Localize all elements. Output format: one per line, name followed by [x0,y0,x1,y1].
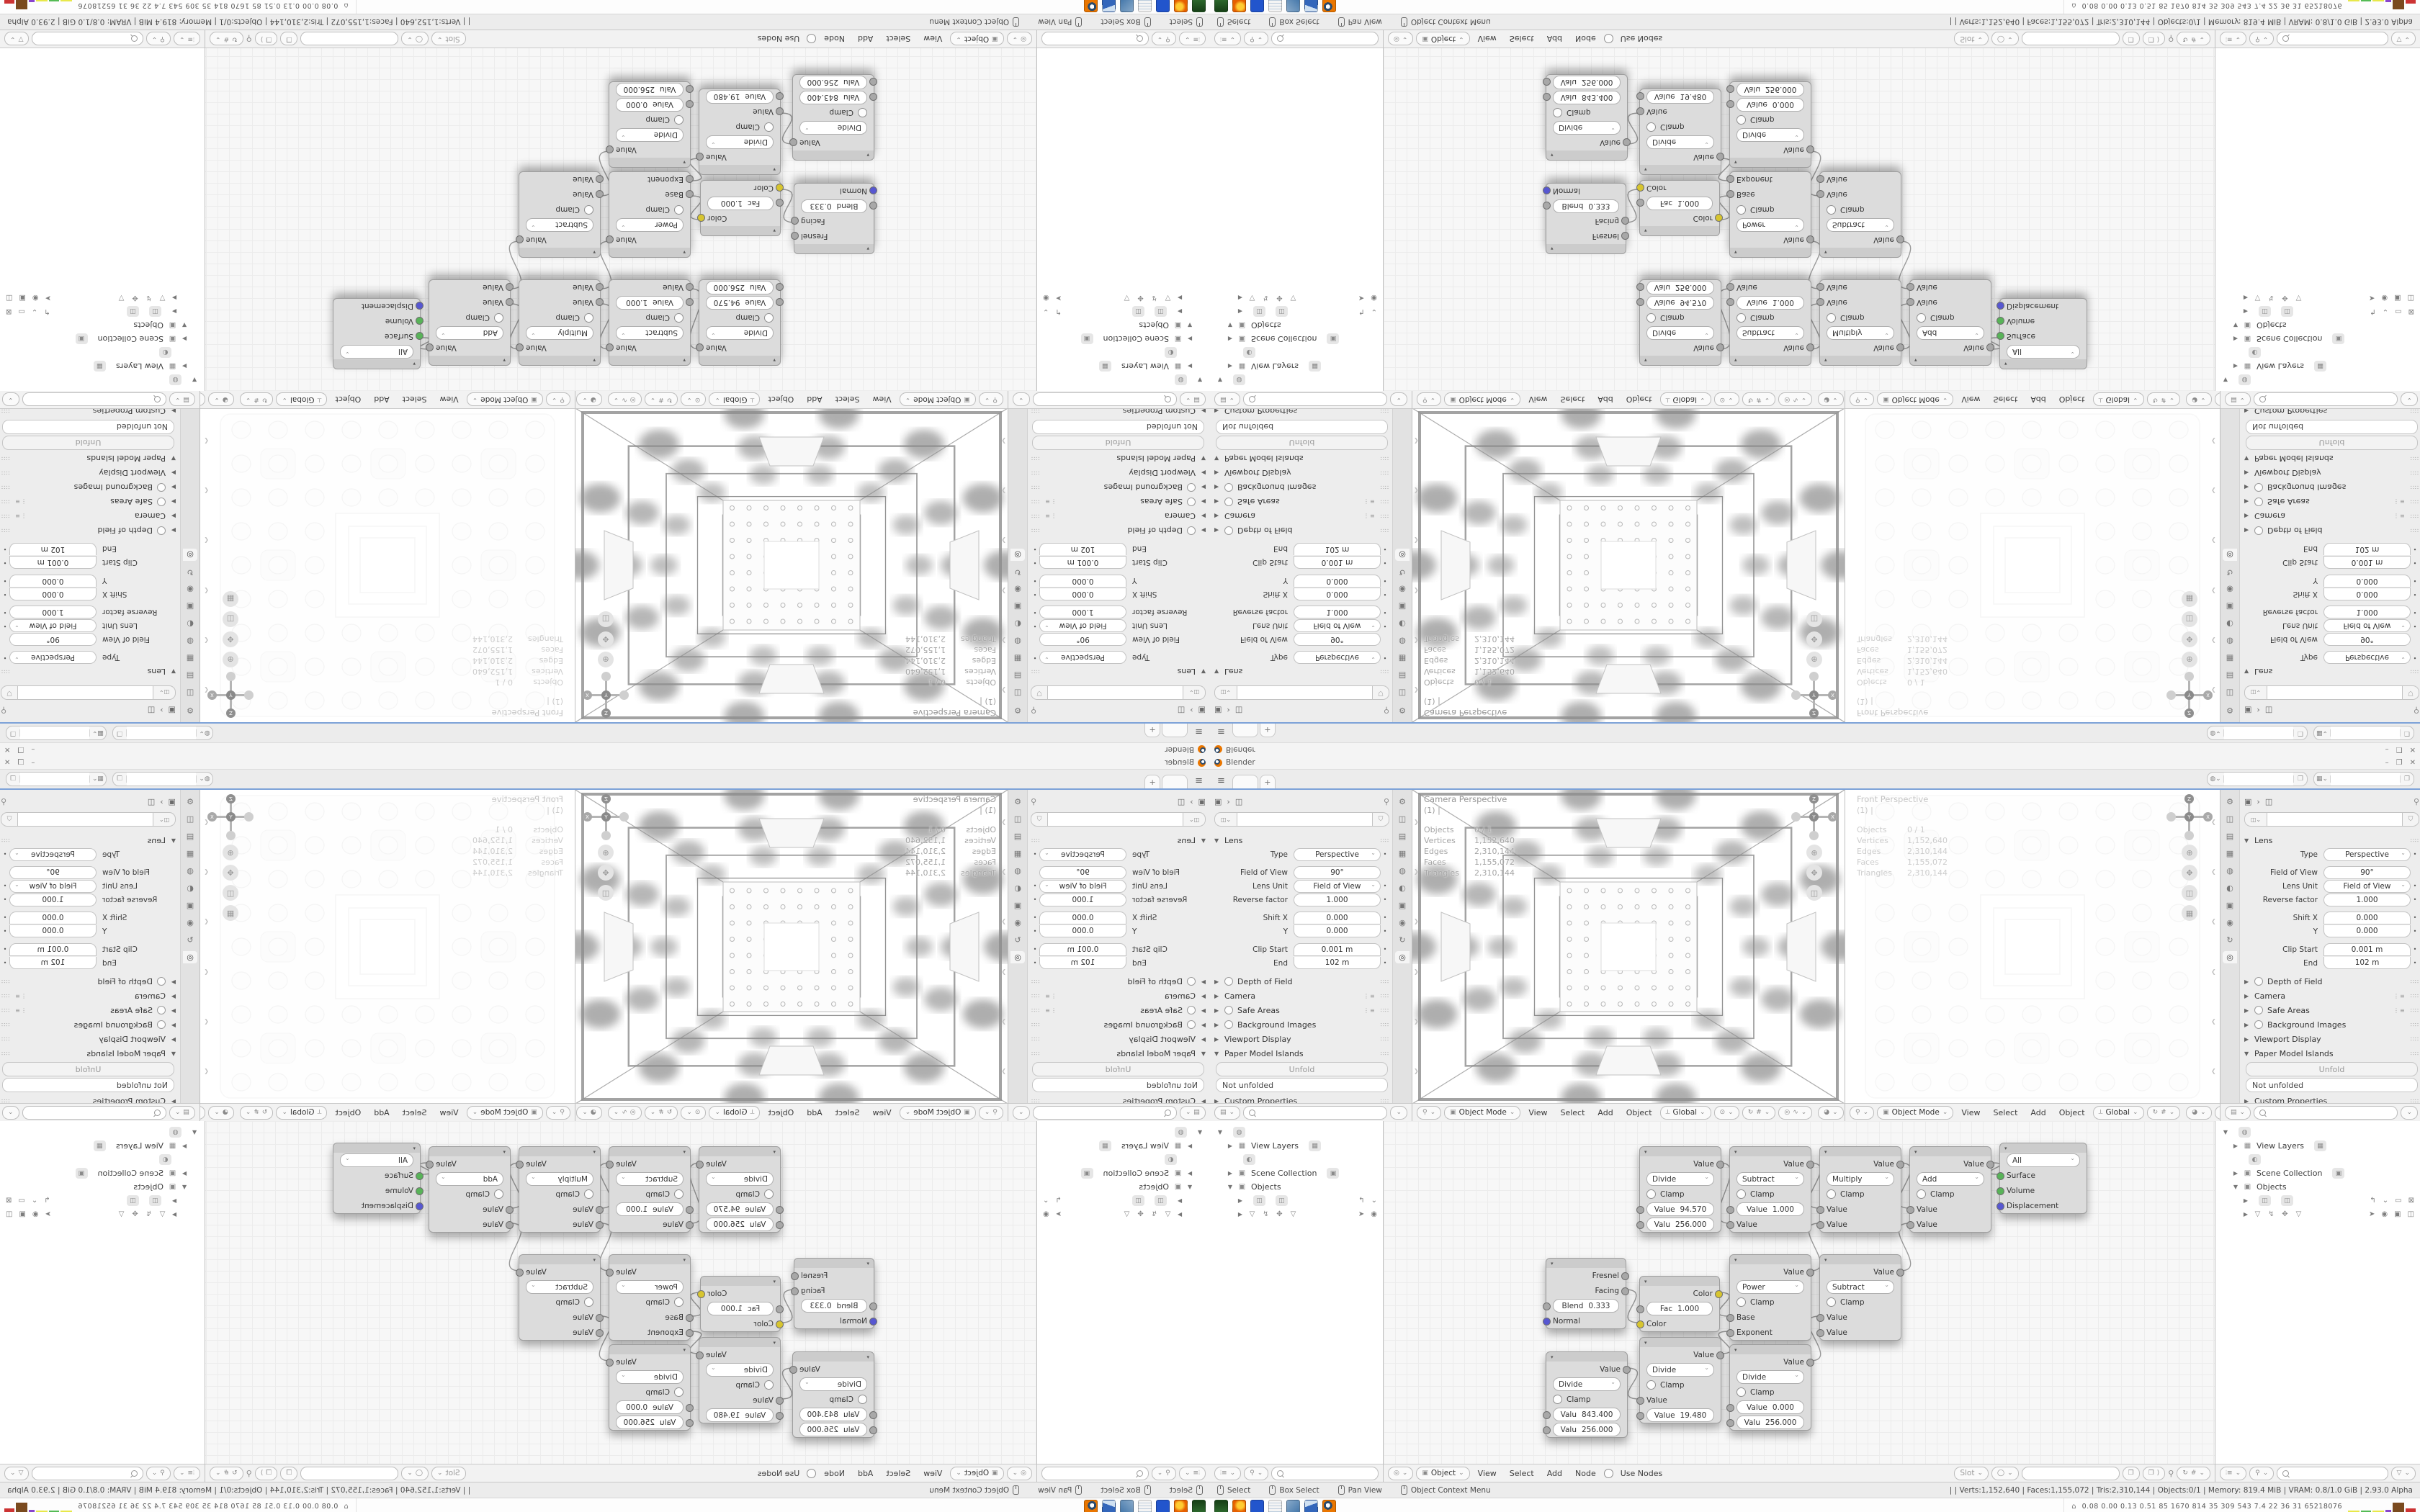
filter-funnel-dropdown[interactable]: ▽⌄ [4,32,29,46]
shading-dropdown[interactable]: ⇱⌄ [2215,393,2220,407]
output-socket[interactable] [1806,343,1814,351]
panel-background-images[interactable]: ▶Background Images∷∷ [2244,1017,2419,1032]
shift-x-field[interactable]: 0.000 [1039,588,1126,601]
menu-object[interactable]: Object [768,1108,794,1117]
tab-render-icon[interactable]: ◫ [183,813,197,825]
input-socket[interactable] [1726,190,1734,198]
operation-value[interactable]: All [340,345,413,359]
node-header[interactable]: ▾ [1640,1338,1721,1347]
mode-dropdown[interactable]: ▣Object Mode⌄ [1877,393,1953,407]
taskbar-text-editor-icon[interactable] [1138,0,1152,12]
panel-safe-areas[interactable]: ▶Safe Areas⋮≡ ∷∷ [1031,1003,1206,1017]
menu-object[interactable]: Object [2059,395,2085,405]
tab-output-icon[interactable]: ▤ [183,670,197,682]
taskbar-blender-icon[interactable] [1084,1500,1098,1512]
properties-options-button[interactable]: ⌄ [1390,1106,1407,1120]
output-socket[interactable] [606,1359,614,1367]
output-socket[interactable] [1621,1287,1629,1295]
dof-checkbox[interactable] [1224,526,1233,535]
shift-x-field[interactable]: 0.000 [1294,588,1381,601]
input-socket[interactable] [1543,93,1551,101]
editor-mode-icon-button[interactable]: ⚲⌄ [546,393,570,407]
node-math-multiply[interactable]: ▾ValueMultiplyClampValueValue [1819,1146,1901,1233]
value-field[interactable]: Value0.000 [616,1400,684,1414]
tab-constraints-icon[interactable]: ↻ [1010,934,1025,946]
node-header[interactable]: ▾ [333,1143,420,1153]
shader-type-dropdown[interactable]: ◎⌄ [1388,32,1413,46]
value-field[interactable]: Value19.480 [706,90,774,104]
panel-paper-model-islands[interactable]: ▼Paper Model Islands∷∷ [1,451,176,466]
workspace-tab[interactable] [1162,724,1188,737]
node-invert[interactable]: ▾ColorFac1.000Color [1639,180,1720,236]
menu-view[interactable]: View [923,1469,942,1478]
fov-field[interactable]: 90° [1039,634,1126,647]
fake-user-shield-icon[interactable]: ⛉ [1,812,17,827]
shading-dropdown[interactable]: ⇱⌄ [200,393,205,407]
taskbar-floppy-icon[interactable] [1156,1500,1170,1512]
panel-paper-model-islands[interactable]: ▼Paper Model Islands∷∷ [1,1046,176,1061]
value-field[interactable]: Valu256.000 [616,83,684,96]
value-field[interactable]: Fac1.000 [707,1302,774,1315]
properties-options-button[interactable]: ⌄ [1390,393,1407,407]
output-socket[interactable] [516,1161,524,1169]
properties-search-input[interactable] [22,393,166,407]
panel-safe-areas[interactable]: ▶Safe Areas⋮≡ ∷∷ [2244,1003,2419,1017]
transform-orientation-dropdown[interactable]: ⟂Global⌄ [1660,1106,1711,1120]
output-socket[interactable] [1896,343,1904,351]
lens-type-dropdown[interactable]: Perspective [9,652,97,665]
output-socket[interactable] [1716,343,1724,351]
value-field[interactable]: Value0.000 [1736,98,1804,112]
clamp-checkbox[interactable] [494,313,503,323]
input-socket[interactable] [1996,302,2004,310]
properties-search-input[interactable] [2254,393,2398,407]
properties-search-input[interactable] [1033,393,1177,407]
tab-render-icon[interactable]: ◫ [1010,687,1025,699]
node-math-power[interactable]: ▾ValuePowerClampBaseExponent [609,1254,691,1341]
tab-object-data-icon[interactable]: ◎ [2223,951,2237,963]
menu-hamburger-icon[interactable]: ≡ [1195,726,1203,737]
new-material-button[interactable]: ❐ [2123,32,2140,46]
output-socket[interactable] [696,1161,704,1169]
pin-icon[interactable]: ⚲ [1,797,6,806]
node-math-subtract-b[interactable]: ▾ValueSubtractClampValueValue [1819,171,1901,258]
input-socket[interactable] [1996,1202,2004,1210]
node-layer-weight[interactable]: ▾FresnelFacingBlend0.333Normal [794,183,874,254]
input-socket[interactable] [1543,202,1551,210]
menu-hamburger-icon[interactable]: ≡ [1217,726,1225,737]
tab-scene-icon[interactable]: ◍ [1395,865,1410,877]
node-header[interactable]: ▾ [699,165,780,174]
tab-object-icon[interactable]: ▣ [1010,600,1025,613]
outliner-camera-row[interactable]: ▶◫◫↰⌄ [1217,1194,1380,1207]
value-field[interactable]: Blend0.333 [1553,199,1619,213]
toolbar-collapsed-chevrons[interactable]: ❯❯❯❯❯❯ [999,438,1006,693]
panel-viewport-display[interactable]: ▶Viewport Display∷∷ [1031,1032,1206,1046]
outliner-search-input[interactable] [1271,32,1379,46]
safe-areas-checkbox[interactable] [2254,498,2263,506]
clamp-checkbox[interactable] [1646,1380,1656,1390]
camera-data-icon[interactable]: ◫ [1235,706,1242,716]
output-socket[interactable] [1623,138,1631,146]
operation-value[interactable]: Multiply [526,1172,593,1186]
node-layer-weight[interactable]: ▾FresnelFacingBlend0.333Normal [1546,183,1626,254]
operation-value[interactable]: Multiply [1827,1172,1894,1186]
node-material-output[interactable]: ▾AllSurfaceVolumeDisplacement [333,1143,421,1214]
safe-areas-checkbox[interactable] [1224,1006,1233,1014]
outliner-search-input[interactable] [2277,32,2388,46]
view-layer-name-field[interactable] [20,726,89,739]
menu-select[interactable]: Select [403,1108,427,1117]
panel-camera[interactable]: ▶Camera⋮≡ ∷∷ [1,509,176,523]
output-socket[interactable] [606,1161,614,1169]
slot-dropdown[interactable]: Slot⌄ [431,1467,466,1480]
taskbar-window-icon[interactable] [1286,0,1300,12]
fake-user-shield-icon[interactable]: ⛉ [1,685,17,700]
node-math-divide-b[interactable]: ▾ValueDivideClampValu843.400Valu256.000 [792,74,874,161]
proportional-editing-toggle[interactable]: ◎∿⌄ [608,393,642,407]
clamp-checkbox[interactable] [1736,1387,1746,1397]
clamp-checkbox[interactable] [1646,122,1656,132]
panel-camera[interactable]: ▶Camera⋮≡ ∷∷ [1031,989,1206,1003]
output-socket[interactable] [426,1161,434,1169]
new-material-button[interactable]: ❐ [2123,1467,2140,1480]
outliner-scene-collection-row[interactable]: ▶▣Scene Collection▣ [1040,332,1203,346]
display-mode-dropdown[interactable]: ⦙≡⌄ [1214,1467,1241,1480]
node-header[interactable]: ▾ [519,1147,600,1156]
panel-paper-model-islands[interactable]: ▼Paper Model Islands∷∷ [1214,451,1389,466]
bg-images-checkbox[interactable] [2254,1020,2263,1029]
menu-select[interactable]: Select [1560,1108,1585,1117]
node-header[interactable]: ▾ [519,356,600,365]
tab-output-icon[interactable]: ▤ [1395,830,1410,842]
node-math-multiply[interactable]: ▾ValueMultiplyClampValueValue [519,1146,601,1233]
outliner-scene-row[interactable]: ▼◍ [1040,1125,1203,1139]
mode-dropdown[interactable]: ▣Object Mode⌄ [1877,1106,1953,1120]
input-socket[interactable] [869,78,877,86]
node-math-divide-b[interactable]: ▾ValueDivideClampValu843.400Valu256.000 [792,1351,874,1438]
snap-toggle[interactable]: ↻#⌄ [2147,393,2181,407]
menu-node[interactable]: Node [824,35,845,44]
output-socket[interactable] [791,1272,799,1280]
input-socket[interactable] [1726,1221,1734,1229]
node-math-divide-d[interactable]: ▾ValueDivideClampValue0.000Valu256.000 [609,81,691,168]
pin-icon[interactable]: ⚲ [1384,797,1389,806]
clip-end-field[interactable]: 102 m [1039,543,1126,555]
camera-name-field[interactable] [2267,812,2403,827]
input-socket[interactable] [1636,1305,1644,1313]
output-socket[interactable] [791,1287,799,1295]
input-socket[interactable] [506,298,514,306]
input-socket[interactable] [776,298,784,306]
clamp-checkbox[interactable] [674,1387,684,1397]
viewport-camera-canvas[interactable]: ❯❯❯❯❯❯ Camera Perspective (1) | Objects0… [575,790,1008,1103]
tab-output-icon[interactable]: ▤ [183,830,197,842]
node-math-divide-d[interactable]: ▾ValueDivideClampValue0.000Valu256.000 [1729,81,1811,168]
filter-mode-dropdown[interactable]: ⚲⌄ [1152,32,1176,46]
fov-field[interactable]: 90° [2323,866,2411,879]
input-socket[interactable] [1636,92,1644,100]
value-field[interactable]: Valu843.400 [799,91,867,104]
tab-tool-icon[interactable]: ⚙ [1395,796,1410,808]
clip-start-field[interactable]: 0.001 m [2323,557,2411,570]
node-math-power[interactable]: ▾ValuePowerClampBaseExponent [1729,171,1811,258]
panel-camera[interactable]: ▶Camera⋮≡ ∷∷ [2244,509,2419,523]
new-view-layer-icon[interactable]: ❐ [6,775,20,783]
input-socket[interactable] [776,1397,784,1405]
properties-options-button[interactable]: ⌄ [1013,1106,1030,1120]
overlays-dropdown[interactable]: ◕⌄ [208,1106,233,1120]
new-material-button[interactable]: ❐ [280,32,297,46]
camera-name-field[interactable] [17,812,153,827]
operation-value[interactable]: Subtract [616,326,684,340]
node-header[interactable]: ▾ [609,1255,690,1264]
value-field[interactable]: Value1.000 [616,1202,684,1216]
taskbar-firefox-icon[interactable] [1174,1500,1188,1512]
outliner-objects-row[interactable]: ▼▣Objects [3,1180,197,1194]
node-header[interactable]: ▾ [1640,356,1721,365]
clamp-checkbox[interactable] [584,205,593,215]
input-socket[interactable] [1816,175,1824,183]
output-socket[interactable] [1806,145,1814,153]
input-socket[interactable] [1726,1419,1734,1427]
pin-icon[interactable]: ⚲ [246,35,252,44]
node-math-add[interactable]: ▾ValueAddClampValueValue [429,1146,511,1233]
input-socket[interactable] [869,1302,877,1310]
clip-start-field[interactable]: 0.001 m [1294,557,1381,570]
menu-view[interactable]: View [1478,1469,1497,1478]
tab-object-icon[interactable]: ▣ [1395,899,1410,912]
taskbar-text-editor-icon[interactable] [1268,1500,1282,1512]
operation-value[interactable]: All [340,1153,413,1167]
value-field[interactable]: Fac1.000 [1646,197,1713,210]
taskbar-terminal-icon[interactable] [1214,1500,1228,1512]
tab-constraints-icon[interactable]: ↻ [2223,934,2237,946]
safe-areas-checkbox[interactable] [1187,1006,1196,1014]
lens-unit-dropdown[interactable]: Field of View [9,880,97,893]
input-socket[interactable] [596,298,604,306]
reverse-factor-field[interactable]: 1.000 [1294,894,1381,906]
camera-view-icon[interactable]: ◫ [598,885,614,901]
pin-icon[interactable]: ⚲ [1,706,6,716]
shift-y-field[interactable]: 0.000 [1039,575,1126,587]
outliner-view-layers-row[interactable]: ▶▦View Layers▦ [1040,359,1203,373]
clip-start-field[interactable]: 0.001 m [9,557,97,570]
dof-checkbox[interactable] [157,977,166,986]
editor-mode-icon-button[interactable]: ⚲⌄ [1850,1106,1874,1120]
clip-end-field[interactable]: 102 m [9,957,97,969]
operation-value[interactable]: Divide [1646,1172,1714,1186]
panel-viewport-display[interactable]: ▶Viewport Display∷∷ [1,466,176,480]
input-socket[interactable] [1906,298,1914,306]
node-header[interactable]: ▾ [1640,165,1721,174]
scene-selector[interactable]: ◍⌄❐ [2207,772,2308,786]
safe-areas-checkbox[interactable] [157,1006,166,1014]
shift-x-field[interactable]: 0.000 [2323,912,2411,924]
lens-panel-header[interactable]: ▼Lens∷∷ [1214,833,1389,847]
outliner-scene-row[interactable]: ▼◍ [2223,373,2417,387]
node-header[interactable]: ▾ [1640,1277,1719,1286]
panel-custom-properties[interactable]: ▶Custom Properties∷∷ [2244,1094,2419,1103]
input-socket[interactable] [1906,1206,1914,1214]
filter-funnel-dropdown[interactable]: ▽⌄ [2391,32,2416,46]
panel-custom-properties[interactable]: ▶Custom Properties∷∷ [1,1094,176,1103]
camera-view-icon[interactable]: ◫ [223,885,238,901]
node-tree-dropdown[interactable]: ▣Object⌄ [1416,1467,1469,1480]
node-header[interactable]: ▾ [1730,1255,1811,1264]
minimize-button[interactable]: – [31,759,35,767]
taskbar-floppy-icon[interactable] [1156,0,1170,12]
view-layer-selector[interactable]: ▦⌄❐ [2313,772,2414,786]
shift-y-field[interactable]: 0.000 [1294,575,1381,587]
operation-value[interactable]: Power [616,1280,684,1294]
zoom-icon[interactable]: ⊕ [223,652,238,667]
scene-name-field[interactable] [2224,726,2293,739]
operation-value[interactable]: All [2007,345,2080,359]
shader-type-dropdown[interactable]: ◎⌄ [1007,1467,1032,1480]
node-invert[interactable]: ▾ColorFac1.000Color [700,180,781,236]
navigation-gizmo[interactable]: Z X Y [583,794,629,840]
object-icon[interactable]: ▣ [1198,797,1206,806]
taskbar-terminal-icon[interactable] [1214,0,1228,12]
camera-name-field[interactable] [2267,685,2403,700]
toolbar-collapsed-chevrons[interactable]: ❯❯❯❯❯❯ [999,819,1006,1074]
viewport-front-canvas[interactable]: Front Perspective (1) | Objects0 / 1 Ver… [200,790,575,1103]
toolbar-collapsed-chevrons[interactable]: ❯❯❯❯❯❯ [1414,819,1421,1074]
fov-field[interactable]: 90° [9,866,97,879]
outliner-world-row[interactable]: ◐ [1217,346,1380,359]
tab-object-data-icon[interactable]: ◎ [1395,951,1410,963]
overlays-dropdown[interactable]: ◕⌄ [2186,1106,2211,1120]
tab-tool-icon[interactable]: ⚙ [1395,704,1410,716]
taskbar-firefox-icon[interactable] [1232,1500,1246,1512]
editor-mode-icon-button[interactable]: ⚲⌄ [1850,393,1874,407]
operation-value[interactable]: Subtract [1827,1280,1894,1294]
tab-render-icon[interactable]: ◫ [1395,687,1410,699]
input-socket[interactable] [776,1305,784,1313]
mode-dropdown[interactable]: ▣Object Mode⌄ [1444,393,1520,407]
tab-world-icon[interactable]: ◐ [1395,882,1410,894]
tab-output-icon[interactable]: ▤ [2223,830,2237,842]
tab-output-icon[interactable]: ▤ [2223,670,2237,682]
output-socket[interactable] [1621,217,1629,225]
panel-background-images[interactable]: ▶Background Images∷∷ [1031,480,1206,495]
lens-panel-header[interactable]: ▼Lens∷∷ [1,833,176,847]
node-math-subtract-b[interactable]: ▾ValueSubtractClampValueValue [1819,1254,1901,1341]
menu-add[interactable]: Add [374,1108,389,1117]
tab-world-icon[interactable]: ◐ [2223,618,2237,630]
properties-search-input[interactable] [1243,1106,1387,1120]
camera-name-field[interactable] [17,685,153,700]
input-socket[interactable] [1726,85,1734,93]
safe-areas-checkbox[interactable] [2254,1006,2263,1014]
taskbar-blender-icon[interactable] [1084,0,1098,12]
menu-select[interactable]: Select [835,395,860,405]
input-socket[interactable] [1726,1314,1734,1322]
node-header[interactable]: ▾ [333,359,420,369]
restore-button[interactable]: ❐ [17,759,24,767]
input-socket[interactable] [686,298,694,306]
operation-value[interactable]: Multiply [1827,326,1894,340]
outliner-search-input[interactable] [32,32,143,46]
clamp-checkbox[interactable] [1646,1189,1656,1199]
camera-data-icon[interactable]: ◫ [2265,706,2272,716]
editor-mode-icon-button[interactable]: ⚲⌄ [979,1106,1003,1120]
scene-selector[interactable]: ◍⌄❐ [112,772,213,786]
tab-object-icon[interactable]: ▣ [1395,600,1410,613]
lens-unit-dropdown[interactable]: Field of View [1039,620,1126,633]
value-field[interactable]: Valu256.000 [616,1416,684,1429]
input-socket[interactable] [1636,283,1644,291]
outliner-camera-row[interactable]: ▶◫◫↰⌄ [1217,305,1380,318]
input-socket[interactable] [686,1419,694,1427]
taskbar-text-editor-icon[interactable] [1138,1500,1152,1512]
filter-mode-dropdown[interactable]: ⚲⌄ [1244,32,1268,46]
node-math-subtract-a[interactable]: ▾ValueSubtractClampValue1.000Value [1729,279,1811,366]
panel-depth-of-field[interactable]: ▶Depth of Field∷∷ [1031,974,1206,989]
node-math-divide-c[interactable]: ▾ValueDivideClampValueValue19.480 [699,89,781,175]
pin-icon[interactable]: ⚲ [1031,706,1036,716]
restore-button[interactable]: ❐ [2396,746,2403,754]
node-header[interactable]: ▾ [794,244,874,253]
toolbar-collapsed-chevrons[interactable]: ❯❯❯❯❯❯ [1414,438,1421,693]
proportional-editing-toggle[interactable]: ◎∿⌄ [608,1106,642,1120]
tab-object-icon[interactable]: ▣ [183,600,197,613]
clamp-checkbox[interactable] [674,115,684,125]
output-socket[interactable] [1715,214,1723,222]
value-field[interactable]: Valu256.000 [1553,76,1621,89]
operation-value[interactable]: Divide [706,326,774,340]
add-workspace-tab[interactable]: + [1144,724,1160,737]
unfold-button[interactable]: Unfold [2,436,174,450]
panel-camera[interactable]: ▶Camera⋮≡ ∷∷ [1031,509,1206,523]
operation-value[interactable]: Multiply [526,326,593,340]
taskbar-firefox-icon[interactable] [1232,0,1246,12]
input-socket[interactable] [776,1320,784,1328]
shift-x-field[interactable]: 0.000 [9,912,97,924]
safe-areas-checkbox[interactable] [1224,498,1233,506]
panel-custom-properties[interactable]: ▶Custom Properties∷∷ [2244,409,2419,418]
camera-view-icon[interactable]: ◫ [1806,885,1822,901]
node-header[interactable]: ▾ [1640,1147,1721,1156]
outliner-camera-row[interactable]: ▶◫◫↰⌄▭⊠ [2223,1194,2417,1207]
value-field[interactable]: Value94.570 [706,296,774,310]
input-socket[interactable] [869,186,877,194]
menu-node[interactable]: Node [1575,1469,1596,1478]
menu-view[interactable]: View [1961,395,1980,405]
panel-viewport-display[interactable]: ▶Viewport Display∷∷ [2244,466,2419,480]
outliner-search-input[interactable] [1041,32,1149,46]
tab-scene-icon[interactable]: ◍ [2223,635,2237,647]
node-header[interactable]: ▾ [1730,1345,1811,1354]
input-socket[interactable] [596,1329,604,1337]
node-math-subtract-b[interactable]: ▾ValueSubtractClampValueValue [519,171,601,258]
menu-hamburger-icon[interactable]: ≡ [1217,775,1225,786]
input-socket[interactable] [1636,1412,1644,1420]
tab-view-layer-icon[interactable]: ▦ [183,847,197,860]
slot-dropdown[interactable]: Slot⌄ [431,32,466,46]
operation-value[interactable]: Divide [1646,326,1714,340]
material-browse-dropdown[interactable]: ◯⌄ [401,1467,429,1480]
shading-dropdown[interactable]: ⇱⌄ [2215,1106,2220,1120]
taskbar-image-viewer-icon[interactable] [1304,0,1318,12]
outliner-mesh-row[interactable]: ▶▽↯✥▽➤◉▣◫ [2223,1207,2417,1221]
bg-images-checkbox[interactable] [1224,1020,1233,1029]
input-socket[interactable] [776,1206,784,1214]
camera-name-field[interactable] [1237,685,1373,700]
dof-checkbox[interactable] [2254,977,2263,986]
menu-add[interactable]: Add [807,1108,822,1117]
